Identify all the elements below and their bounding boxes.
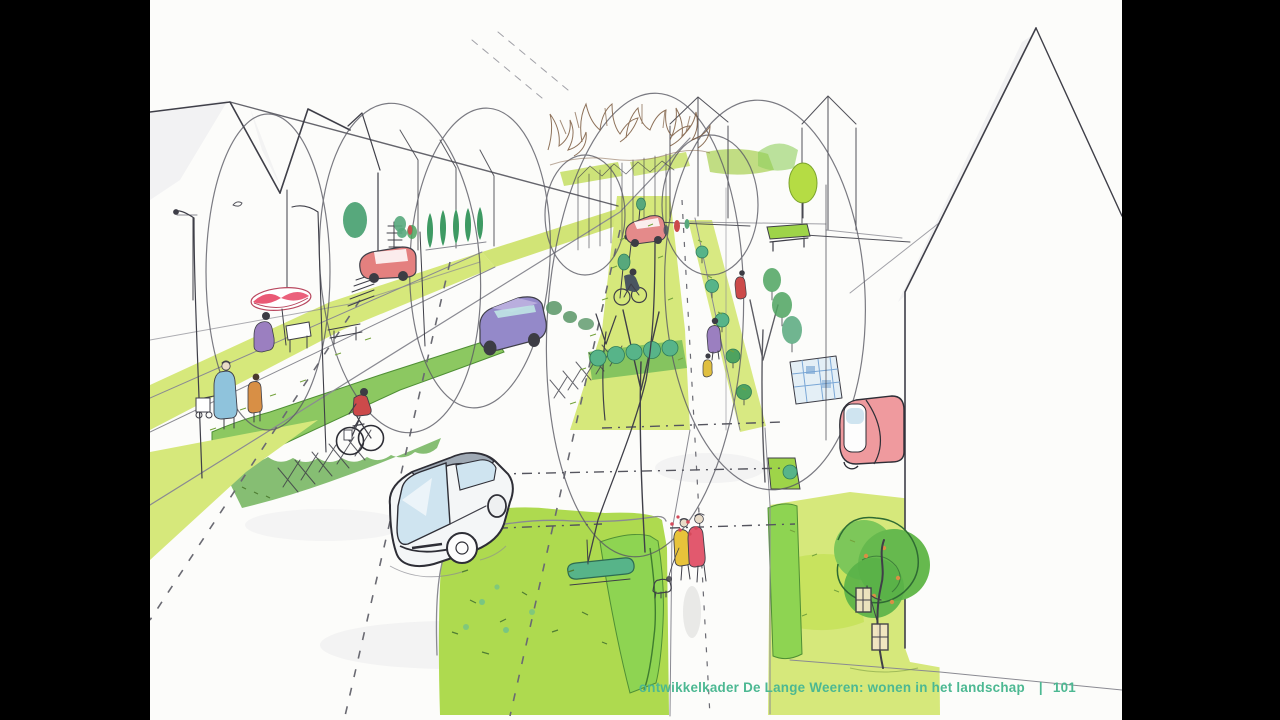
- page-footer: ontwikkelkader De Lange Weeren: wonen in…: [639, 680, 1076, 695]
- facade-shrubs: [343, 202, 417, 250]
- red-car-left-street: [360, 247, 416, 283]
- walker-red-small: [735, 270, 746, 299]
- purple-car-main-road: [480, 297, 547, 356]
- slide-stage: ontwikkelkader De Lange Weeren: wonen in…: [0, 0, 1280, 720]
- red-car-parked-right: [840, 396, 904, 469]
- left-distant-verge: [482, 208, 628, 267]
- footer-separator: |: [1039, 680, 1043, 695]
- child-orange: [248, 374, 262, 422]
- right-hedgerow: [768, 504, 802, 659]
- street-sketch: [150, 0, 1122, 720]
- green-bench: [767, 224, 810, 251]
- green-verges: [150, 143, 940, 715]
- big-house-face: [905, 28, 1122, 700]
- blue-grid-paving: [790, 356, 842, 404]
- cypress-row: [426, 207, 486, 250]
- child-yellow: [703, 353, 712, 377]
- footer-caption: ontwikkelkader De Lange Weeren: wonen in…: [639, 680, 1025, 695]
- bright-ball-tree: [789, 163, 817, 218]
- walker-red: [688, 514, 706, 582]
- sketch-page: ontwikkelkader De Lange Weeren: wonen in…: [150, 0, 1122, 720]
- page-number: 101: [1053, 680, 1076, 695]
